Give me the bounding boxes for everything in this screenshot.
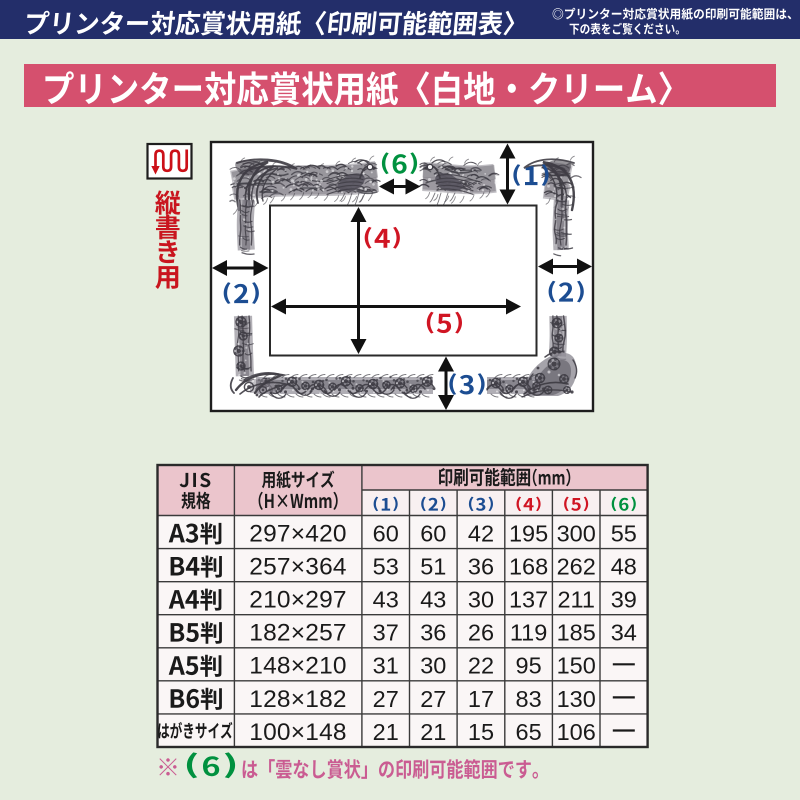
svg-text:39: 39 (611, 587, 637, 613)
svg-text:36: 36 (420, 620, 446, 646)
svg-text:60: 60 (420, 520, 446, 546)
svg-text:31: 31 (373, 653, 399, 679)
svg-text:119: 119 (510, 620, 547, 646)
svg-text:211: 211 (557, 587, 594, 613)
svg-text:106: 106 (557, 719, 596, 745)
svg-text:95: 95 (516, 653, 542, 679)
svg-text:37: 37 (373, 620, 399, 646)
svg-text:21: 21 (373, 719, 399, 745)
svg-text:65: 65 (516, 719, 542, 745)
svg-text:182×257: 182×257 (249, 620, 346, 647)
svg-text:210×297: 210×297 (249, 587, 346, 614)
svg-text:17: 17 (468, 686, 494, 712)
svg-text:60: 60 (373, 520, 399, 546)
svg-text:30: 30 (468, 587, 494, 613)
svg-text:15: 15 (468, 719, 494, 745)
svg-text:53: 53 (373, 554, 399, 580)
svg-text:51: 51 (420, 554, 446, 580)
svg-text:43: 43 (420, 587, 446, 613)
svg-text:27: 27 (420, 686, 446, 712)
svg-text:34: 34 (611, 620, 637, 646)
svg-text:262: 262 (557, 554, 596, 580)
svg-text:48: 48 (611, 554, 637, 580)
svg-text:43: 43 (373, 587, 399, 613)
svg-text:130: 130 (557, 686, 596, 712)
svg-text:300: 300 (557, 520, 596, 546)
svg-text:22: 22 (468, 653, 494, 679)
svg-text:42: 42 (468, 520, 494, 546)
svg-text:185: 185 (557, 620, 596, 646)
svg-text:26: 26 (468, 620, 494, 646)
svg-text:36: 36 (468, 554, 494, 580)
svg-text:30: 30 (420, 653, 446, 679)
svg-text:21: 21 (420, 719, 446, 745)
svg-text:137: 137 (509, 587, 548, 613)
svg-text:297×420: 297×420 (249, 520, 346, 547)
svg-text:27: 27 (373, 686, 399, 712)
svg-text:257×364: 257×364 (249, 554, 346, 581)
svg-text:195: 195 (509, 520, 548, 546)
svg-text:168: 168 (509, 554, 548, 580)
svg-text:128×182: 128×182 (249, 686, 346, 713)
svg-text:100×148: 100×148 (249, 719, 346, 746)
svg-text:148×210: 148×210 (249, 653, 346, 680)
svg-text:55: 55 (611, 520, 637, 546)
svg-text:83: 83 (516, 686, 542, 712)
svg-text:150: 150 (557, 653, 596, 679)
